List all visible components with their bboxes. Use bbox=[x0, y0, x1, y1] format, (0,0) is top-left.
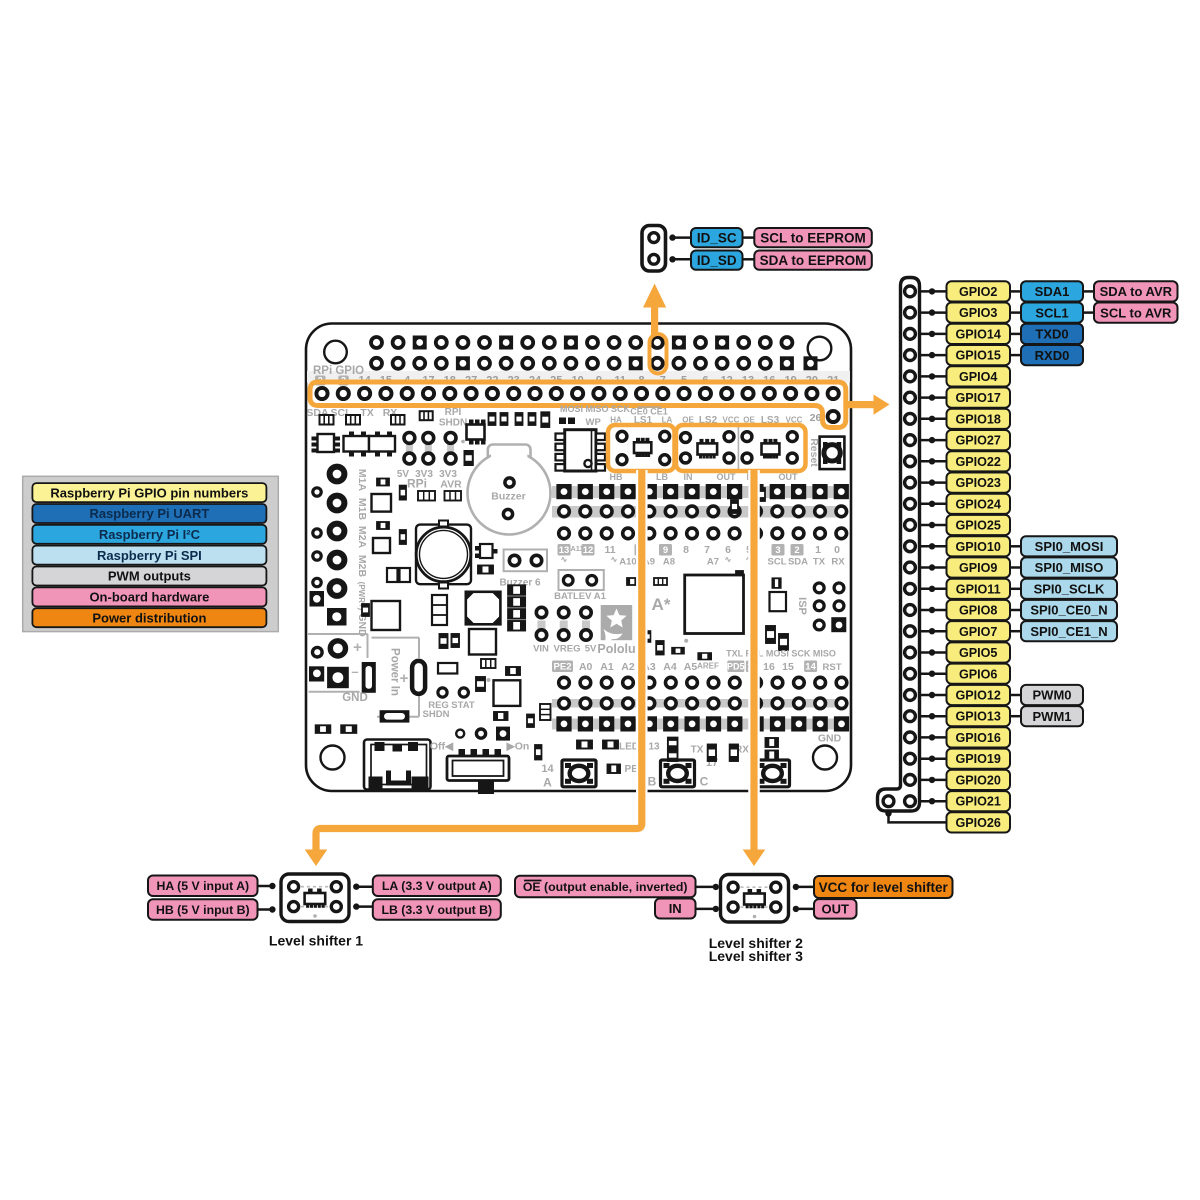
svg-text:GPIO20: GPIO20 bbox=[955, 774, 1001, 788]
svg-text:Raspberry Pi UART: Raspberry Pi UART bbox=[89, 506, 209, 521]
svg-text:TXD0: TXD0 bbox=[1035, 327, 1068, 342]
svg-text:Level shifter 3: Level shifter 3 bbox=[709, 948, 803, 964]
svg-text:▶On: ▶On bbox=[506, 741, 530, 753]
svg-text:RX: RX bbox=[831, 557, 845, 568]
svg-text:GPIO6: GPIO6 bbox=[959, 667, 998, 681]
svg-text:GPIO19: GPIO19 bbox=[955, 752, 1001, 766]
svg-text:IN: IN bbox=[669, 901, 682, 916]
svg-text:GPIO16: GPIO16 bbox=[955, 731, 1001, 745]
svg-text:On-board hardware: On-board hardware bbox=[89, 590, 209, 605]
svg-text:SDA to EEPROM: SDA to EEPROM bbox=[760, 253, 867, 268]
svg-text:15: 15 bbox=[782, 661, 794, 673]
svg-text:+: + bbox=[353, 639, 362, 656]
svg-text:OUT: OUT bbox=[779, 472, 799, 482]
svg-text:GPIO26: GPIO26 bbox=[955, 816, 1001, 830]
svg-text:MOSI MISO SCK: MOSI MISO SCK bbox=[560, 404, 631, 414]
svg-text:GPIO24: GPIO24 bbox=[955, 497, 1001, 511]
svg-text:GPIO10: GPIO10 bbox=[955, 540, 1001, 554]
svg-text:M2A: M2A bbox=[356, 526, 368, 549]
svg-text:GPIO5: GPIO5 bbox=[959, 646, 998, 660]
svg-text:GPIO13: GPIO13 bbox=[955, 710, 1001, 724]
svg-text:GPIO15: GPIO15 bbox=[955, 349, 1001, 363]
svg-text:8: 8 bbox=[683, 544, 689, 556]
svg-text:A0: A0 bbox=[579, 661, 593, 673]
svg-text:SPI0_SCLK: SPI0_SCLK bbox=[1034, 581, 1105, 596]
svg-text:WP: WP bbox=[586, 417, 602, 428]
svg-text:TXL RXL MOSI SCK MISO: TXL RXL MOSI SCK MISO bbox=[726, 649, 836, 659]
svg-text:SPI0_MISO: SPI0_MISO bbox=[1035, 560, 1104, 575]
svg-text:PWM outputs: PWM outputs bbox=[108, 569, 191, 584]
svg-text:A*: A* bbox=[652, 595, 671, 614]
svg-text:2: 2 bbox=[794, 545, 799, 556]
svg-text:GPIO22: GPIO22 bbox=[955, 455, 1001, 469]
svg-text:SDA1: SDA1 bbox=[1035, 284, 1070, 299]
svg-text:LA (3.3 V output A): LA (3.3 V output A) bbox=[382, 879, 492, 893]
svg-text:GPIO25: GPIO25 bbox=[955, 519, 1001, 533]
svg-text:RPI: RPI bbox=[445, 407, 462, 418]
svg-text:GPIO3: GPIO3 bbox=[959, 306, 998, 320]
svg-text:Reset: Reset bbox=[808, 438, 820, 467]
svg-text:ID_SC: ID_SC bbox=[697, 231, 737, 246]
svg-text:A5: A5 bbox=[684, 661, 698, 673]
svg-text:PE2: PE2 bbox=[554, 662, 572, 673]
svg-text:SCL to AVR: SCL to AVR bbox=[1100, 305, 1172, 320]
svg-text:OE (output enable, inverted): OE (output enable, inverted) bbox=[523, 880, 688, 894]
svg-text:16: 16 bbox=[763, 661, 775, 673]
svg-text:M1A: M1A bbox=[356, 469, 368, 492]
svg-text:RXD0: RXD0 bbox=[1035, 348, 1070, 363]
svg-text:+: + bbox=[400, 670, 409, 687]
svg-text:3: 3 bbox=[775, 545, 780, 556]
svg-text:A4: A4 bbox=[663, 661, 677, 673]
svg-text:A1: A1 bbox=[600, 661, 614, 673]
svg-text:∿: ∿ bbox=[611, 555, 618, 564]
svg-text:∿: ∿ bbox=[561, 555, 568, 564]
svg-text:13: 13 bbox=[648, 742, 660, 753]
svg-text:RST: RST bbox=[823, 662, 842, 673]
svg-text:GPIO17: GPIO17 bbox=[955, 391, 1001, 405]
svg-text:IN: IN bbox=[684, 472, 693, 482]
svg-text:SCL: SCL bbox=[768, 557, 787, 568]
svg-text:TX: TX bbox=[813, 557, 826, 568]
svg-text:LED: LED bbox=[619, 742, 639, 753]
svg-text:SHDN: SHDN bbox=[423, 709, 450, 720]
svg-text:OUT: OUT bbox=[821, 902, 849, 917]
svg-text:Raspberry Pi SPI: Raspberry Pi SPI bbox=[97, 548, 202, 563]
svg-text:SDA to AVR: SDA to AVR bbox=[1100, 284, 1173, 299]
svg-text:SPI0_CE1_N: SPI0_CE1_N bbox=[1030, 624, 1107, 639]
svg-text:C: C bbox=[700, 775, 709, 789]
svg-text:SPI0_CE0_N: SPI0_CE0_N bbox=[1030, 603, 1107, 618]
svg-text:9: 9 bbox=[663, 545, 668, 556]
svg-text:GPIO7: GPIO7 bbox=[959, 625, 998, 639]
svg-text:GPIO18: GPIO18 bbox=[955, 412, 1001, 426]
svg-text:GND: GND bbox=[818, 733, 842, 745]
svg-text:STAT: STAT bbox=[451, 700, 475, 711]
svg-text:GPIO23: GPIO23 bbox=[955, 476, 1001, 490]
svg-text:TX: TX bbox=[360, 407, 373, 419]
svg-text:SDA: SDA bbox=[788, 557, 808, 568]
svg-text:1: 1 bbox=[815, 544, 821, 556]
svg-text:0: 0 bbox=[834, 544, 840, 556]
svg-text:GPIO12: GPIO12 bbox=[955, 689, 1001, 703]
svg-text:BATLEV A1: BATLEV A1 bbox=[554, 591, 606, 602]
svg-text:GPIO14: GPIO14 bbox=[955, 327, 1001, 341]
svg-text:A7: A7 bbox=[707, 557, 719, 568]
svg-text:Power distribution: Power distribution bbox=[92, 610, 206, 625]
svg-text:VCC for level shifter: VCC for level shifter bbox=[819, 880, 949, 895]
svg-text:LB (3.3 V output B): LB (3.3 V output B) bbox=[381, 903, 492, 917]
svg-text:HB: HB bbox=[610, 472, 623, 482]
svg-text:VREG: VREG bbox=[554, 644, 581, 655]
svg-text:GPIO2: GPIO2 bbox=[959, 285, 998, 299]
svg-text:7: 7 bbox=[704, 544, 710, 556]
svg-text:RPi: RPi bbox=[407, 477, 427, 491]
svg-text:SCL to EEPROM: SCL to EEPROM bbox=[760, 231, 866, 246]
svg-text:TX: TX bbox=[691, 745, 704, 756]
svg-text:Buzzer: Buzzer bbox=[491, 491, 525, 503]
svg-text:A10: A10 bbox=[619, 557, 636, 568]
svg-text:A: A bbox=[543, 776, 552, 790]
svg-text:Pololu: Pololu bbox=[597, 642, 635, 656]
svg-text:HB (5 V input B): HB (5 V input B) bbox=[156, 903, 250, 917]
svg-text:PWM0: PWM0 bbox=[1033, 688, 1072, 703]
svg-text:GPIO27: GPIO27 bbox=[955, 434, 1001, 448]
svg-text:GPIO11: GPIO11 bbox=[956, 582, 1001, 596]
svg-text:ID_SD: ID_SD bbox=[697, 253, 737, 268]
svg-text:5V: 5V bbox=[585, 644, 597, 655]
svg-text:PWM1: PWM1 bbox=[1033, 709, 1072, 724]
svg-text:VIN: VIN bbox=[533, 644, 549, 655]
svg-text:26: 26 bbox=[810, 412, 822, 424]
svg-text:PD5: PD5 bbox=[727, 662, 745, 672]
svg-text:14: 14 bbox=[541, 763, 554, 775]
svg-text:A8: A8 bbox=[663, 557, 675, 568]
svg-text:B: B bbox=[648, 775, 657, 789]
svg-text:Level shifter 1: Level shifter 1 bbox=[269, 933, 363, 949]
svg-text:HA (5 V input A): HA (5 V input A) bbox=[156, 879, 249, 893]
svg-text:12: 12 bbox=[583, 545, 594, 556]
svg-text:OUT: OUT bbox=[717, 472, 737, 482]
svg-text:AREF: AREF bbox=[697, 662, 719, 671]
svg-text:GPIO21: GPIO21 bbox=[955, 795, 1001, 809]
svg-text:GND: GND bbox=[342, 692, 368, 704]
svg-text:GPIO8: GPIO8 bbox=[959, 604, 998, 618]
svg-text:GPIO4: GPIO4 bbox=[959, 370, 998, 384]
svg-text:–: – bbox=[351, 664, 358, 679]
svg-text:SCL1: SCL1 bbox=[1035, 305, 1068, 320]
svg-text:A2: A2 bbox=[621, 661, 635, 673]
svg-text:14: 14 bbox=[805, 662, 816, 673]
svg-text:M2B: M2B bbox=[356, 555, 368, 578]
svg-text:Raspberry Pi I²C: Raspberry Pi I²C bbox=[99, 527, 201, 542]
svg-text:∿: ∿ bbox=[725, 555, 732, 564]
svg-text:Raspberry Pi GPIO pin numbers: Raspberry Pi GPIO pin numbers bbox=[50, 485, 248, 500]
svg-text:GPIO9: GPIO9 bbox=[959, 561, 998, 575]
svg-text:M1B: M1B bbox=[356, 498, 368, 521]
svg-text:SHDN: SHDN bbox=[439, 418, 467, 429]
svg-text:AVR: AVR bbox=[440, 479, 462, 491]
svg-text:SPI0_MOSI: SPI0_MOSI bbox=[1035, 539, 1104, 554]
svg-text:ISP: ISP bbox=[796, 597, 808, 615]
svg-text:LB: LB bbox=[656, 472, 668, 482]
svg-text:Off◀: Off◀ bbox=[430, 741, 454, 753]
